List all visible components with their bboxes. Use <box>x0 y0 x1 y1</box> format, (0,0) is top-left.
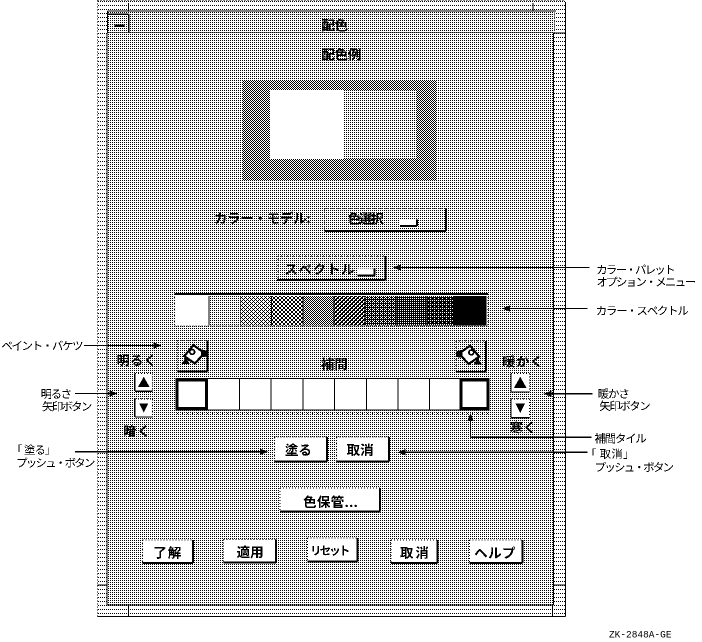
svg-text:ZK-2848A-GE: ZK-2848A-GE <box>609 630 672 642</box>
